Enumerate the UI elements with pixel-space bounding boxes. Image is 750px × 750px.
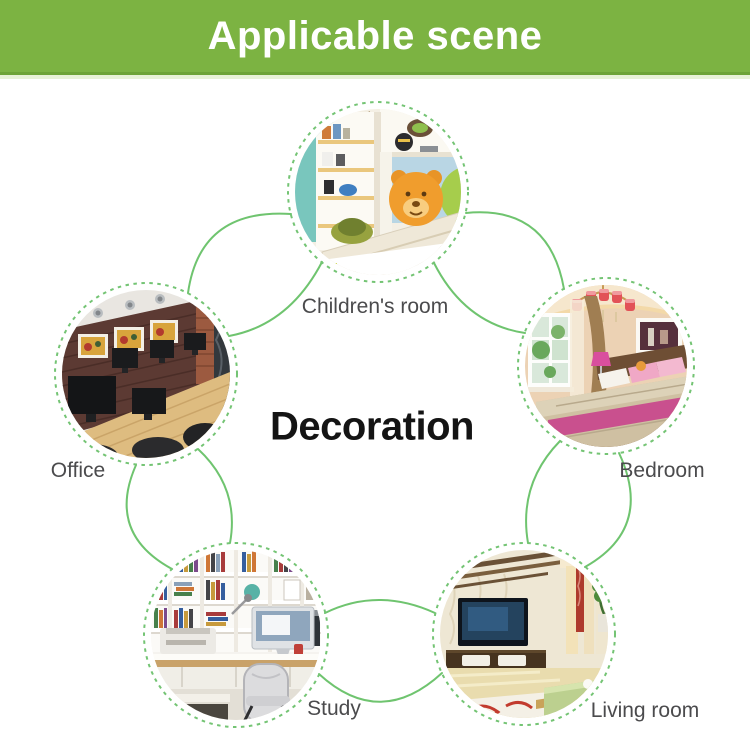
connector-arc <box>198 449 232 543</box>
bedroom-photo <box>524 284 690 450</box>
scene-label-office: Office <box>51 459 105 483</box>
study-photo <box>150 549 322 722</box>
scene-label-study: Study <box>307 697 361 721</box>
scene-diagram <box>0 0 750 750</box>
scene-label-living-room: Living room <box>591 699 700 723</box>
connector-arc <box>466 212 564 289</box>
connector-arc <box>188 214 291 293</box>
connector-arc <box>526 441 560 543</box>
center-title: Decoration <box>270 405 474 450</box>
office-photo <box>62 290 230 468</box>
scene-label-childrens-room: Children's room <box>302 295 448 319</box>
scene-label-bedroom: Bedroom <box>619 459 704 483</box>
childrens-room-photo <box>293 107 500 296</box>
applicable-scene-page: Applicable scene <box>0 0 750 750</box>
living-room-photo <box>438 548 614 721</box>
connector-arc <box>127 465 172 569</box>
connector-arc <box>325 600 435 613</box>
